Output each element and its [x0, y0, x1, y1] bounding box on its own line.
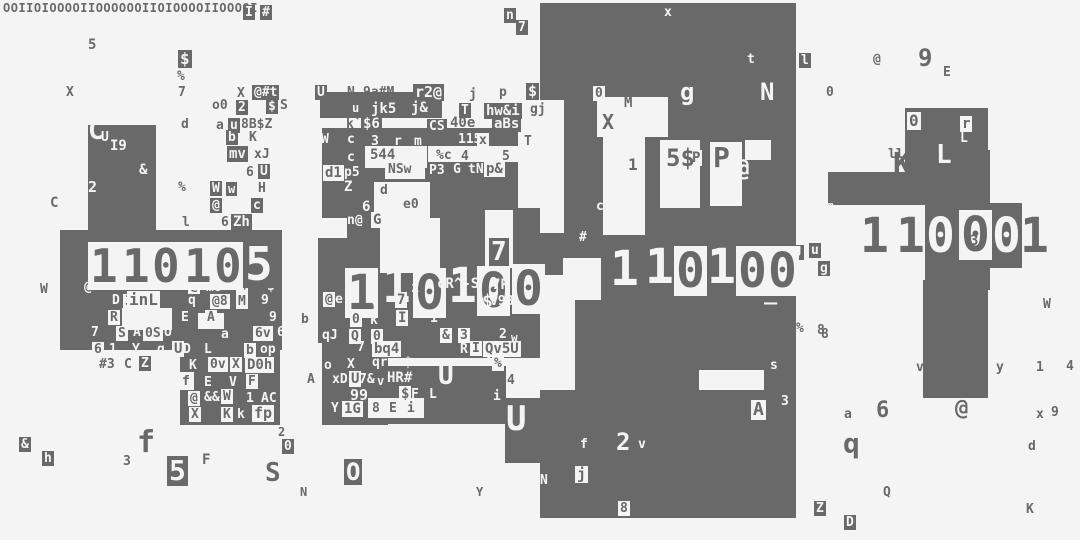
- glyph: C: [88, 118, 104, 144]
- glyph: $6: [361, 116, 382, 132]
- glyph: M: [624, 96, 632, 110]
- glyph: E: [204, 376, 212, 389]
- glyph: 0: [826, 86, 834, 99]
- glyph: I: [470, 341, 482, 356]
- glyph: 0: [512, 264, 545, 314]
- glyph: Z: [139, 356, 151, 371]
- glyph: 3: [970, 234, 978, 248]
- glyph: 1: [182, 242, 214, 290]
- glyph: W: [210, 181, 222, 196]
- glyph: p: [499, 86, 507, 99]
- glyph: 7: [357, 341, 365, 354]
- glyph: @: [210, 198, 222, 213]
- glyph: r: [394, 135, 402, 148]
- glyph: u: [809, 243, 821, 258]
- glyph: c: [596, 200, 604, 213]
- glyph: 3: [781, 395, 789, 408]
- glyph: 2: [499, 328, 507, 341]
- glyph: 0: [212, 242, 244, 290]
- glyph: $: [178, 50, 192, 68]
- glyph: jk5: [369, 101, 398, 117]
- glyph: 9: [261, 294, 269, 307]
- glyph: k: [370, 314, 378, 327]
- glyph: 3: [123, 455, 131, 468]
- glyph: @: [955, 398, 968, 420]
- glyph: X: [66, 86, 74, 99]
- glyph: $: [266, 99, 278, 114]
- glyph: 4: [1066, 360, 1074, 373]
- glyph: gj: [530, 103, 546, 116]
- glyph: F: [202, 453, 210, 467]
- binary-header-text: OOIIOIOOOOIIOOOOOOIIOIOOOOIIOOOOI: [3, 2, 258, 14]
- glyph: aBs: [492, 116, 521, 132]
- glyph: 1: [896, 212, 925, 260]
- glyph: A: [205, 310, 217, 325]
- glyph: Z: [814, 501, 826, 516]
- glyph: 1G: [342, 401, 363, 417]
- glyph: r2@: [413, 84, 444, 101]
- glyph: _: [764, 282, 777, 304]
- glyph: 1: [707, 243, 736, 291]
- glyph: #3: [99, 358, 115, 371]
- glyph: r: [960, 116, 972, 132]
- glyph: W: [40, 283, 48, 296]
- glyph: 6v: [253, 326, 273, 341]
- glyph: j: [575, 466, 588, 483]
- glyph: a: [221, 328, 229, 341]
- glyph: &: [440, 328, 452, 343]
- glyph: T: [524, 135, 532, 148]
- glyph: 1: [860, 212, 889, 260]
- glyph: Z: [344, 180, 352, 194]
- glyph: f: [137, 428, 155, 458]
- glyph: W: [1043, 298, 1051, 311]
- glyph: K: [893, 150, 911, 180]
- glyph: v9B: [490, 295, 513, 308]
- glyph: 1: [246, 392, 254, 405]
- glyph: n@: [347, 214, 363, 227]
- glyph: y: [996, 361, 1004, 374]
- glyph: h: [42, 451, 54, 466]
- glyph: 0: [992, 212, 1021, 260]
- glyph: op: [260, 343, 276, 356]
- glyph: X: [230, 357, 242, 372]
- glyph: 9: [918, 46, 932, 70]
- glyph: 5: [167, 456, 188, 486]
- glyph: 6: [277, 326, 285, 339]
- glyph: 8: [372, 402, 380, 415]
- glyph: P: [713, 144, 730, 172]
- glyph: e0: [403, 198, 419, 211]
- glyph: a: [216, 119, 224, 132]
- glyph: 0: [150, 242, 182, 290]
- glyph: 5: [243, 240, 275, 288]
- glyph: 6: [272, 245, 280, 258]
- glyph: z: [411, 281, 419, 295]
- glyph: b: [244, 343, 256, 358]
- glyph: 1: [133, 311, 141, 324]
- glyph: W: [321, 133, 329, 146]
- glyph: 0: [593, 86, 605, 101]
- glyph: d: [1028, 440, 1036, 453]
- light-patch: [603, 137, 645, 235]
- glyph: e: [335, 293, 343, 306]
- glyph: o: [324, 359, 332, 372]
- glyph: @: [188, 391, 200, 406]
- glyph: 1: [626, 156, 640, 174]
- glyph: g: [680, 80, 694, 104]
- glyph: L: [429, 388, 437, 401]
- glyph: $: [404, 356, 412, 369]
- glyph: #: [579, 231, 587, 244]
- glyph: %c: [436, 149, 452, 162]
- glyph: X: [347, 358, 355, 371]
- glyph: 0: [674, 246, 707, 296]
- glyph: Y: [331, 402, 339, 415]
- glyph: W: [221, 389, 233, 404]
- glyph: D: [112, 294, 120, 307]
- glyph: S: [116, 326, 128, 341]
- glyph: 2: [616, 430, 630, 454]
- glyph: U: [315, 85, 327, 100]
- glyph: m: [414, 135, 422, 148]
- glyph: G: [371, 212, 383, 228]
- glyph: D: [844, 515, 856, 530]
- glyph: xJ: [254, 148, 270, 161]
- glyph: F: [246, 374, 258, 389]
- light-patch: [540, 100, 564, 233]
- glyph: U: [438, 363, 454, 389]
- glyph: 1: [645, 243, 674, 291]
- glyph: t: [370, 295, 378, 308]
- glyph: c: [347, 151, 355, 164]
- glyph: @#t: [252, 85, 279, 100]
- glyph: N: [760, 80, 774, 104]
- glyph: 7: [489, 238, 509, 266]
- glyph: O: [344, 459, 362, 485]
- glitch-art-canvas: OOIIOIOOOOIIOOOOOOIIOIOOOOIIOOOOI I#5$%7…: [0, 0, 1080, 540]
- glyph: 7&: [359, 373, 375, 386]
- glyph: V: [155, 311, 163, 324]
- glyph: fp: [252, 405, 274, 422]
- glyph: X: [602, 112, 614, 132]
- glyph: n: [504, 8, 516, 23]
- glyph: 8: [821, 328, 829, 341]
- glyph: F: [411, 388, 419, 401]
- glyph: L: [960, 132, 968, 145]
- light-patch: [699, 370, 764, 390]
- glyph: i: [407, 402, 415, 415]
- glyph: 9: [269, 311, 277, 324]
- glyph: P3: [427, 163, 447, 178]
- glyph: NSw: [388, 163, 411, 176]
- glyph: &: [19, 437, 31, 452]
- glyph: q: [157, 343, 165, 356]
- glyph: L: [204, 343, 212, 356]
- glyph: 1: [345, 268, 378, 318]
- glyph: C: [124, 358, 132, 371]
- glyph: 1: [120, 242, 152, 290]
- glyph: 3: [458, 328, 470, 343]
- glyph: xD: [332, 373, 348, 386]
- glyph: D: [183, 343, 191, 356]
- glyph: inL: [127, 291, 160, 309]
- glyph: @: [323, 292, 335, 307]
- glyph: 0: [350, 312, 362, 327]
- glyph: E: [943, 66, 951, 79]
- glyph: 6: [221, 216, 229, 229]
- glyph: $: [526, 83, 539, 100]
- glyph: 1: [1020, 212, 1049, 260]
- glyph: k`: [346, 118, 362, 131]
- dark-block: [923, 280, 988, 398]
- glyph: w: [226, 182, 237, 196]
- glyph: 7: [395, 292, 407, 308]
- glyph: 0v: [208, 357, 228, 372]
- glyph: 2: [236, 100, 248, 115]
- glyph: 0S: [143, 326, 163, 341]
- glyph: I: [243, 5, 255, 20]
- glyph: 2: [88, 180, 97, 195]
- glyph: c: [251, 198, 263, 213]
- glyph: d: [380, 184, 388, 197]
- glyph: D0h: [245, 357, 274, 373]
- glyph: A: [751, 400, 766, 420]
- glyph: 6: [876, 400, 889, 422]
- glyph: N: [540, 474, 548, 487]
- glyph: 544: [370, 148, 395, 162]
- glyph: 9: [1051, 406, 1059, 419]
- glyph: o0: [212, 99, 228, 112]
- glyph: R: [108, 310, 120, 325]
- glyph: 1: [109, 343, 117, 356]
- glyph: K: [1026, 503, 1034, 516]
- glyph: Q: [883, 486, 891, 499]
- glyph: %: [178, 181, 186, 194]
- glyph: k: [237, 408, 245, 421]
- glyph: qJ: [322, 329, 338, 342]
- glyph: i: [491, 389, 503, 404]
- glyph: u: [352, 102, 359, 114]
- glyph: x: [1036, 408, 1044, 421]
- glyph: C: [50, 196, 58, 210]
- glyph: 0: [926, 212, 955, 260]
- glyph: HR#: [387, 371, 412, 385]
- glyph: H: [258, 182, 266, 195]
- glyph: 40e: [450, 116, 475, 130]
- glyph: K: [249, 131, 257, 144]
- glyph: $: [482, 293, 493, 311]
- glyph: 1: [610, 245, 639, 293]
- glyph: d: [181, 118, 189, 131]
- glyph: 6: [362, 200, 370, 214]
- glyph: x: [664, 6, 672, 19]
- glyph: &: [139, 163, 147, 177]
- glyph: 9a#M: [363, 86, 394, 99]
- glyph: s: [770, 359, 778, 372]
- glyph: A: [307, 373, 315, 386]
- glyph: m: [827, 200, 834, 211]
- glyph: d1: [323, 165, 344, 181]
- glyph: 0: [907, 112, 921, 130]
- glyph: p&: [484, 161, 505, 177]
- glyph: 1: [88, 242, 120, 290]
- glyph: f: [182, 375, 190, 388]
- glyph: tN: [468, 163, 484, 176]
- glyph: 6: [246, 166, 254, 179]
- glyph: &&: [204, 391, 220, 404]
- glyph: V: [229, 376, 237, 389]
- glyph: E: [181, 311, 189, 324]
- glyph: U: [258, 164, 270, 179]
- glyph: K: [189, 359, 197, 372]
- glyph: U: [506, 402, 526, 436]
- glyph: 0: [282, 439, 294, 454]
- glyph: I9: [108, 138, 129, 154]
- glyph: @: [735, 156, 749, 180]
- glyph: I: [396, 310, 408, 326]
- glyph: M: [236, 294, 248, 309]
- glyph: 7: [178, 86, 186, 99]
- glyph: l: [182, 216, 190, 229]
- glyph: j&: [409, 100, 430, 116]
- glyph: 7: [516, 20, 528, 35]
- glyph: X: [189, 407, 201, 422]
- glyph: 5$: [666, 146, 695, 170]
- glyph: Y: [134, 131, 142, 144]
- glyph: f: [580, 438, 588, 451]
- glyph: 7P: [492, 278, 509, 292]
- glyph: 1: [430, 312, 438, 325]
- glyph: %: [796, 322, 804, 335]
- glyph: q: [843, 430, 860, 458]
- glyph: t: [747, 53, 755, 66]
- glyph: b: [226, 130, 238, 145]
- glyph: a: [844, 408, 852, 421]
- glyph: mv: [227, 146, 248, 162]
- glyph: c: [347, 133, 355, 146]
- glyph: 4: [484, 356, 492, 369]
- glyph: b: [301, 313, 309, 326]
- glyph: 7: [91, 326, 99, 339]
- light-patch: [563, 258, 601, 300]
- glyph: N: [347, 86, 355, 99]
- glyph: v: [377, 375, 384, 387]
- glyph: $: [399, 386, 411, 402]
- glyph: @: [873, 53, 881, 66]
- glyph: q: [188, 294, 196, 307]
- glyph: Y: [132, 343, 140, 356]
- glyph: X: [237, 87, 245, 100]
- glyph: j: [469, 88, 477, 101]
- glyph: 6: [92, 342, 104, 357]
- glyph: 2: [278, 426, 285, 438]
- glyph: #: [260, 5, 272, 20]
- glyph: g: [818, 261, 830, 276]
- glyph: S: [265, 460, 281, 486]
- glyph: l: [799, 53, 811, 68]
- glyph: 5: [88, 38, 96, 52]
- glyph: %: [492, 356, 504, 371]
- glyph: G: [453, 163, 461, 176]
- glyph: v: [916, 361, 924, 374]
- glyph: %: [177, 70, 185, 83]
- glyph: 4: [507, 374, 515, 387]
- glyph: x: [477, 133, 489, 148]
- glyph: CS: [427, 119, 447, 134]
- glyph: 1: [1036, 361, 1044, 374]
- glyph: 8: [618, 501, 630, 516]
- glyph: L: [936, 142, 952, 168]
- glyph: @8: [210, 294, 230, 309]
- glyph: R: [460, 343, 468, 356]
- glyph: E: [389, 402, 397, 415]
- glyph: N: [300, 486, 307, 498]
- glyph: K: [221, 407, 233, 422]
- glyph: qr: [372, 356, 388, 369]
- glyph: S: [280, 99, 288, 112]
- glyph: cR^-S: [437, 277, 479, 291]
- glyph: Y: [476, 486, 483, 498]
- glyph: v: [638, 438, 646, 451]
- glyph: U: [164, 326, 172, 339]
- glyph: p5: [344, 166, 360, 179]
- glyph: Zh: [231, 214, 252, 230]
- glyph: A: [133, 326, 141, 339]
